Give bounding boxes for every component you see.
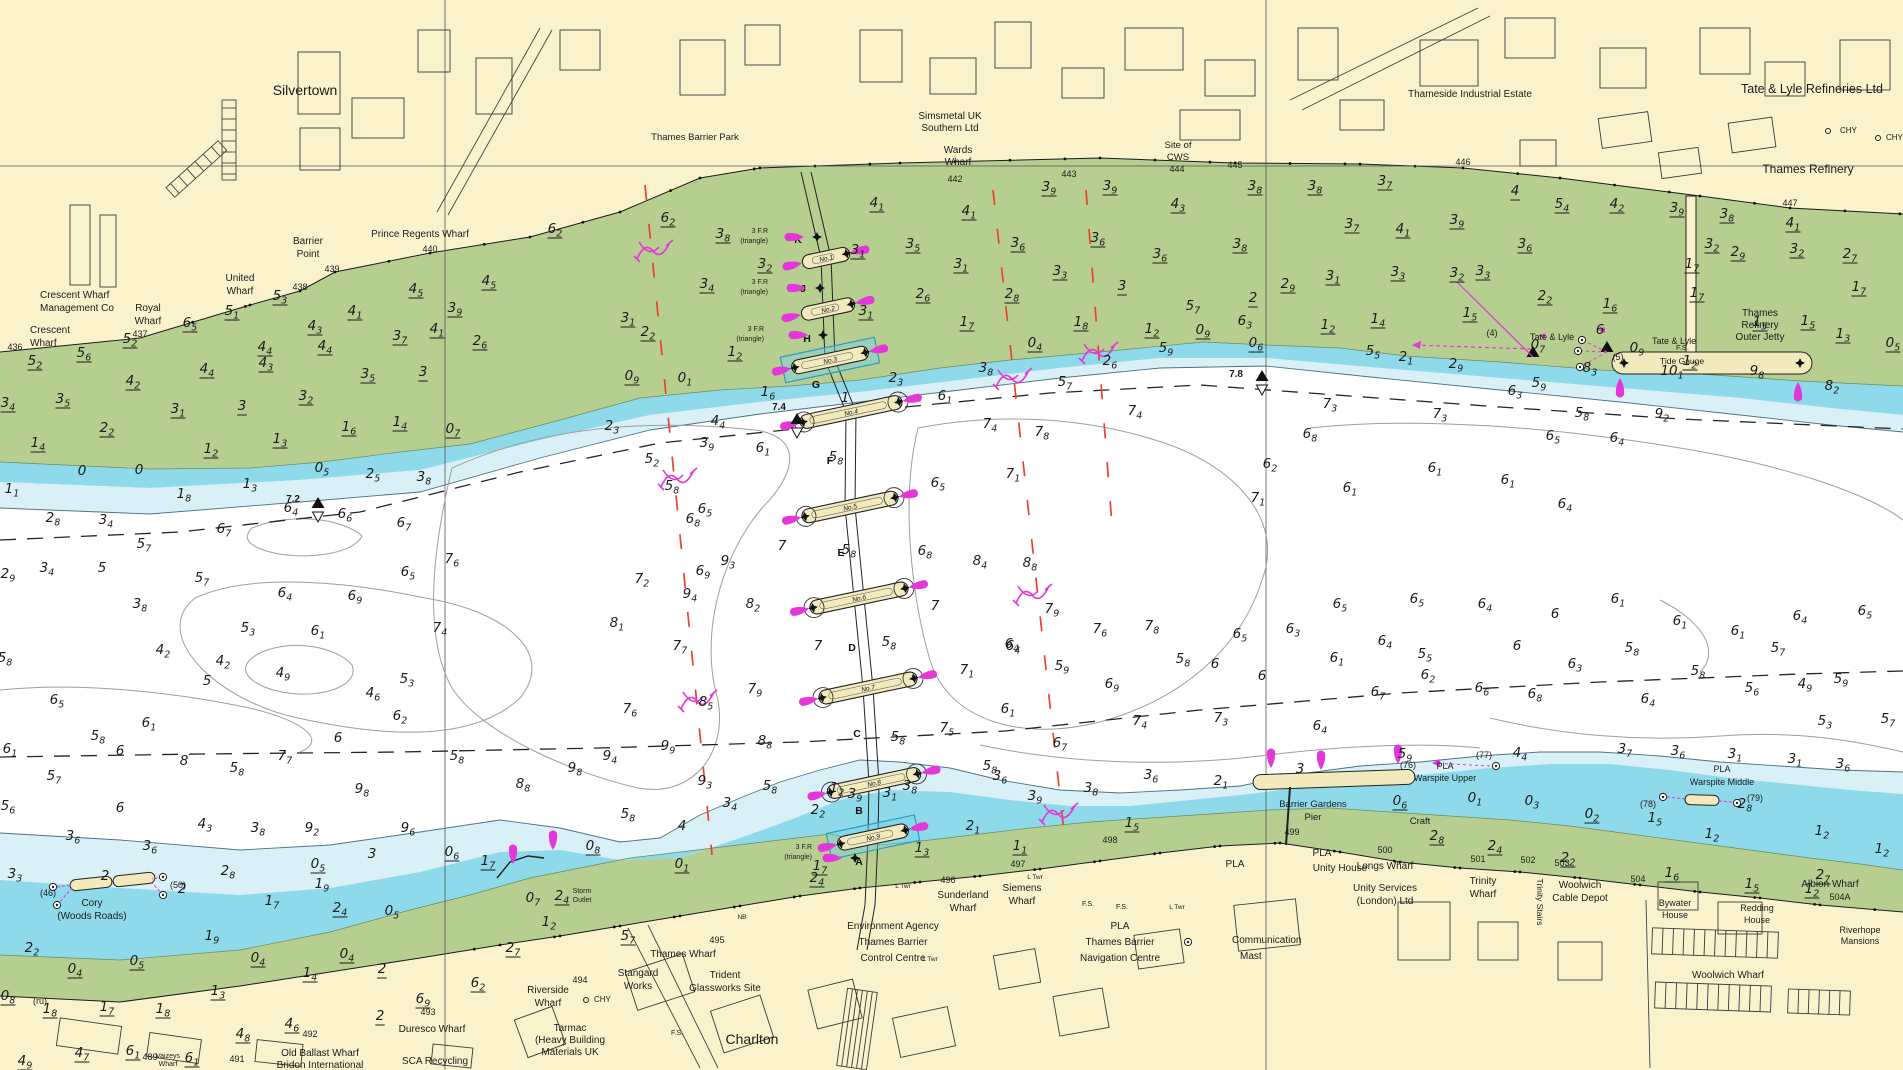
wharf-dot: [1819, 904, 1822, 907]
wharf-dot: [619, 925, 622, 928]
place-label: (76): [1400, 760, 1416, 770]
shore-number: 502: [1520, 855, 1535, 865]
wharf-dot: [1668, 191, 1671, 194]
place-label: Tarmac: [554, 1023, 587, 1034]
place-label: CWS: [1167, 152, 1189, 163]
shore-number: 442: [947, 174, 962, 184]
place-label: Stangard: [618, 968, 659, 979]
buoy-dot: [1579, 366, 1581, 368]
wharf-dot: [673, 916, 676, 919]
wharf-dot: [1339, 851, 1342, 854]
place-label: L Twr: [895, 883, 911, 890]
wharf-dot: [1898, 212, 1901, 215]
place-label: (ru): [33, 996, 47, 1006]
sounding: 6: [1513, 638, 1522, 654]
place-label: Wards: [944, 145, 973, 156]
place-label: Riverside: [527, 985, 569, 996]
place-label: Wharf: [159, 1061, 178, 1068]
sounding: 6: [116, 743, 125, 759]
sounding: 4: [678, 818, 687, 834]
sounding: 6: [116, 800, 125, 816]
wharf-dot: [529, 236, 532, 239]
buoy-dot: [162, 876, 164, 878]
wharf-dot: [1753, 202, 1756, 205]
place-label: Royal: [135, 303, 161, 314]
wharf-dot: [1513, 870, 1516, 873]
place-label: Bywater: [1659, 898, 1692, 908]
place-label: Simsmetal UK: [918, 111, 982, 122]
wharf-dot: [699, 177, 702, 180]
shore-number: 503: [1554, 858, 1569, 868]
shore-number: 439: [324, 264, 339, 274]
place-label: Materials UK: [541, 1047, 599, 1058]
place-label: Wharf: [1009, 896, 1036, 907]
wharf-dot: [1753, 896, 1756, 899]
sounding: 8: [180, 753, 189, 769]
place-label: Cory: [81, 898, 102, 909]
place-label: Environment Agency: [847, 921, 939, 932]
wharf-dot: [473, 948, 476, 951]
place-label: Works: [624, 981, 652, 992]
place-label: Vaizeys: [156, 1053, 180, 1060]
shore-number: 494: [572, 975, 587, 985]
shore-number: 491: [229, 1054, 244, 1064]
wharf-dot: [733, 906, 736, 909]
wharf-dot: [973, 875, 976, 878]
shore-number: 498: [1102, 835, 1117, 845]
place-label: Craft: [1410, 816, 1431, 827]
shore-number: 500: [1377, 845, 1392, 855]
place-label: Outer Jetty: [1736, 332, 1785, 343]
wharf-dot: [739, 905, 742, 908]
place-label: Thames Barrier Park: [651, 132, 739, 143]
place-label: Southern Ltd: [921, 123, 978, 134]
place-label: Woolwich: [1559, 880, 1602, 891]
wharf-dot: [1519, 871, 1522, 874]
sounding: 6: [334, 730, 343, 746]
place-label: Wharf: [30, 338, 57, 349]
place-label: CHY: [594, 995, 612, 1004]
sounding: 3: [368, 846, 377, 862]
wharf-dot: [853, 887, 856, 890]
place-label: (78): [1640, 799, 1656, 809]
wharf-dot: [869, 163, 872, 166]
place-label: PLA: [1313, 848, 1332, 859]
place-label: Site of: [1165, 140, 1192, 151]
place-label: Woolwich Wharf: [1692, 970, 1764, 981]
place-label: PLA: [1111, 921, 1130, 932]
shore-number: 445: [1227, 160, 1242, 170]
mooring-buoy: [1184, 938, 1191, 945]
wharf-dot: [249, 304, 252, 307]
place-label: Trident: [710, 970, 741, 981]
wharf-dot: [1033, 868, 1036, 871]
wharf-dot: [1873, 908, 1876, 911]
buoy-dot: [1581, 339, 1583, 341]
wharf-dot: [1459, 867, 1462, 870]
sounding: 2: [378, 961, 387, 977]
mooring-buoy: [1492, 762, 1499, 769]
shore-number: 447: [1782, 198, 1797, 208]
mooring-buoy: [159, 873, 166, 880]
place-label: Mast: [1240, 951, 1262, 962]
place-label: CHY: [1840, 126, 1858, 135]
place-label: Old Ballast Wharf: [281, 1048, 359, 1059]
sounding: 6: [1211, 656, 1220, 672]
shore-number: 443: [1061, 169, 1076, 179]
place-label: Sunderland: [937, 890, 988, 901]
place-label: Trinity Stairs: [1535, 879, 1545, 926]
place-label: Barrier: [293, 236, 324, 247]
wharf-dot: [1344, 162, 1347, 165]
place-label: 3 F.R: [752, 279, 768, 286]
wharf-dot: [1279, 842, 1282, 845]
wharf-dot: [793, 896, 796, 899]
place-label: NB: [737, 914, 746, 921]
place-label: Storm: [573, 888, 592, 895]
wharf-dot: [559, 935, 562, 938]
wharf-dot: [1579, 877, 1582, 880]
place-label: PLA: [1713, 764, 1730, 774]
refinery-approach-jetty: [1686, 196, 1696, 356]
shore-number: 446: [1455, 157, 1470, 167]
sounding: 7: [778, 538, 787, 554]
sounding: 3: [238, 398, 247, 414]
place-label: Mansions: [1841, 936, 1880, 946]
wharf-dot: [1613, 184, 1616, 187]
place-label: Tate & Lyle: [1530, 332, 1574, 342]
wharf-dot: [759, 167, 762, 170]
buoy-dot: [1187, 941, 1189, 943]
place-label: (5): [1613, 352, 1624, 362]
sounding: 0: [78, 463, 87, 479]
place-label: PLA: [1436, 761, 1453, 771]
sounding: 0: [135, 462, 144, 478]
place-label: L Twr: [922, 956, 938, 963]
wharf-dot: [1813, 903, 1816, 906]
wharf-dot: [1462, 167, 1465, 170]
place-label: Wharf: [227, 286, 254, 297]
wharf-dot: [1159, 852, 1162, 855]
wharf-dot: [1213, 845, 1216, 848]
nautical-chart-stage: No.1No.2No.3No.4No.5No.6No.7No.8No.9KJHG…: [0, 0, 1903, 1070]
place-label: Control Centre: [860, 953, 925, 964]
place-label: Navigation Centre: [1080, 953, 1160, 964]
place-label: Thameside Industrial Estate: [1408, 89, 1532, 100]
place-label: House: [1662, 910, 1688, 920]
place-label: L Twr: [1027, 874, 1043, 881]
wharf-dot: [483, 243, 486, 246]
wharf-dot: [1559, 177, 1562, 180]
wharf-dot: [499, 944, 502, 947]
place-label: Refinery: [1741, 320, 1778, 331]
sounding: 4: [1511, 183, 1520, 199]
place-label: Wharf: [1470, 889, 1497, 900]
wharf-dot: [913, 881, 916, 884]
place-label: Longs Wharf: [1357, 861, 1414, 872]
shore-number: 492: [302, 1029, 317, 1039]
wharf-dot: [244, 305, 247, 308]
buoy-dot: [1577, 350, 1579, 352]
wharf-dot: [1274, 842, 1277, 845]
place-label: United: [226, 273, 255, 284]
wharf-dot: [1639, 884, 1642, 887]
nautical-chart: No.1No.2No.3No.4No.5No.6No.7No.8No.9KJHG…: [0, 0, 1903, 1070]
place-label: Thames Barrier: [859, 937, 929, 948]
place-label: Communication: [1232, 935, 1301, 946]
shore-number: 501: [1470, 854, 1485, 864]
buoy-dot: [56, 904, 58, 906]
place-label: 3 F.R: [752, 228, 768, 235]
wharf-dot: [1039, 868, 1042, 871]
place-label: Redding: [1740, 903, 1774, 913]
place-label: Wharf: [945, 157, 972, 168]
place-label: (triangle): [740, 289, 768, 296]
place-label: CHY: [1886, 133, 1903, 142]
place-label: F.S.: [671, 1030, 683, 1037]
sounding: 6: [1551, 606, 1560, 622]
place-label: 504A: [1829, 892, 1850, 902]
shore-number: 495: [709, 935, 724, 945]
shore-number: 497: [1010, 859, 1025, 869]
shore-number: 437: [132, 329, 147, 339]
place-label: (46): [40, 888, 56, 898]
wharf-dot: [919, 881, 922, 884]
place-label: 3 F.R: [748, 326, 764, 333]
place-label: Charlton: [726, 1031, 779, 1047]
span-letter: G: [812, 379, 820, 391]
wharf-dot: [799, 895, 802, 898]
wharf-dot: [669, 189, 672, 192]
place-label: Bridon International: [277, 1060, 364, 1070]
place-label: Prince Regents Wharf: [371, 229, 469, 240]
sounding: 7: [931, 598, 940, 614]
wharf-dot: [582, 221, 585, 224]
place-label: Crescent: [30, 325, 70, 336]
shore-number: 493: [420, 1007, 435, 1017]
place-label: F.S.: [1082, 901, 1094, 908]
place-label: Wharf: [135, 316, 162, 327]
wharf-dot: [1359, 163, 1362, 166]
buoy-dot: [1495, 765, 1497, 767]
place-label: Warspite Middle: [1690, 777, 1754, 787]
sounding: 3: [1296, 761, 1305, 777]
span-letter: B: [855, 805, 863, 817]
span-letter: C: [853, 728, 861, 740]
wharf-dot: [1154, 159, 1157, 162]
mooring-buoy: [1659, 793, 1666, 800]
sounding: 5: [98, 560, 107, 576]
place-label: (triangle): [736, 336, 764, 343]
place-label: Management Co: [40, 303, 114, 314]
place-label: (50): [170, 880, 186, 890]
shore-number: 504: [1630, 874, 1645, 884]
span-letter: D: [848, 642, 856, 654]
sounding: 1: [841, 390, 850, 406]
place-label: (79): [1747, 793, 1763, 803]
place-label: Point: [297, 249, 320, 260]
place-label: 3 F.R: [796, 844, 812, 851]
place-label: Albion Wharf: [1801, 879, 1858, 890]
place-label: Pier: [1305, 812, 1322, 823]
place-label: Cable Depot: [1552, 893, 1608, 904]
wharf-dot: [553, 935, 556, 938]
shore-number: 440: [422, 244, 437, 254]
shore-number: 499: [1284, 827, 1299, 837]
wharf-dot: [1009, 159, 1012, 162]
place-label: Outlet: [573, 897, 592, 904]
wharf-dot: [899, 162, 902, 165]
wharf-dot: [1333, 850, 1336, 853]
place-label: Riverhope: [1839, 925, 1880, 935]
mooring-buoy: [1574, 347, 1581, 354]
place-label: Thames Barrier: [1086, 937, 1156, 948]
place-label: Crescent Wharf: [40, 290, 110, 301]
place-label: Glassworks Site: [689, 983, 761, 994]
place-label: 7.8: [1229, 369, 1243, 380]
sounding: 7: [814, 638, 823, 654]
wharf-dot: [1699, 891, 1702, 894]
wharf-dot: [1209, 161, 1212, 164]
shore-number: 436: [7, 342, 22, 352]
sounding: 2: [1249, 290, 1258, 306]
wharf-dot: [1219, 845, 1222, 848]
buoy-dot: [162, 894, 164, 896]
wharf-dot: [613, 926, 616, 929]
sounding: 2: [376, 1008, 385, 1024]
wharf-dot: [1759, 897, 1762, 900]
wharf-dot: [859, 887, 862, 890]
wharf-dot: [679, 915, 682, 918]
place-label: Trinity: [1470, 876, 1497, 887]
wharf-dot: [1844, 210, 1847, 213]
place-label: Tate & Lyle Refineries Ltd: [1741, 82, 1883, 96]
place-label: Thames Wharf: [650, 949, 716, 960]
mooring-buoy: [159, 891, 166, 898]
place-label: Duresco Wharf: [399, 1024, 466, 1035]
place-label: Thames: [1742, 308, 1778, 319]
buoy-dot: [1662, 796, 1664, 798]
place-label: Siemens: [1003, 883, 1042, 894]
place-label: Unity Services: [1353, 883, 1417, 894]
place-label: Tide Gauge: [1660, 356, 1704, 366]
place-label: (4): [1487, 328, 1498, 338]
place-label: (Heavy Building: [535, 1035, 605, 1046]
wharf-dot: [753, 168, 756, 171]
place-label: Silvertown: [273, 82, 338, 98]
sounding: 6: [1258, 668, 1267, 684]
wharf-dot: [1289, 162, 1292, 165]
wharf-dot: [979, 875, 982, 878]
sounding: 3: [1118, 278, 1127, 294]
mooring-barge: [1685, 794, 1719, 805]
wharf-dot: [1099, 860, 1102, 863]
wharf-dot: [1453, 866, 1456, 869]
shore-number: 438: [292, 282, 307, 292]
wharf-dot: [619, 211, 622, 214]
place-label: (Woods Roads): [57, 911, 126, 922]
place-label: 7.2: [286, 494, 300, 505]
wharf-dot: [1693, 890, 1696, 893]
place-label: SCA Recycling: [402, 1056, 468, 1067]
mooring-buoy: [1578, 336, 1585, 343]
shore-number: 496: [940, 875, 955, 885]
place-label: Wharf: [535, 998, 562, 1009]
sounding: 6: [1596, 322, 1605, 338]
wharf-dot: [1516, 172, 1519, 175]
sounding: 2: [101, 868, 110, 884]
wharf-dot: [1093, 860, 1096, 863]
place-label: (triangle): [784, 854, 812, 861]
wharf-dot: [1699, 195, 1702, 198]
place-label: F.S.: [1116, 904, 1128, 911]
wharf-dot: [388, 260, 391, 263]
place-label: PLA: [1226, 859, 1245, 870]
place-label: House: [1744, 915, 1770, 925]
place-label: Tate & Lyle: [1652, 336, 1696, 346]
sounding: 3: [419, 364, 428, 380]
shore-number: 444: [1169, 164, 1184, 174]
mooring-buoy: [53, 901, 60, 908]
sounding: 5: [203, 673, 212, 689]
wharf-dot: [1064, 157, 1067, 160]
wharf-dot: [1099, 157, 1102, 160]
place-label: Warspite Upper: [1414, 773, 1476, 783]
place-label: (triangle): [740, 238, 768, 245]
place-label: 7.4: [772, 402, 786, 413]
place-label: (London) Ltd: [1357, 896, 1414, 907]
place-label: Thames Refinery: [1762, 162, 1853, 176]
place-label: (77): [1476, 750, 1492, 760]
wharf-dot: [1573, 876, 1576, 879]
place-label: Barrier Gardens: [1279, 799, 1347, 810]
place-label: Wharf: [950, 903, 977, 914]
place-label: L Twr: [1169, 904, 1185, 911]
wharf-dot: [1153, 852, 1156, 855]
